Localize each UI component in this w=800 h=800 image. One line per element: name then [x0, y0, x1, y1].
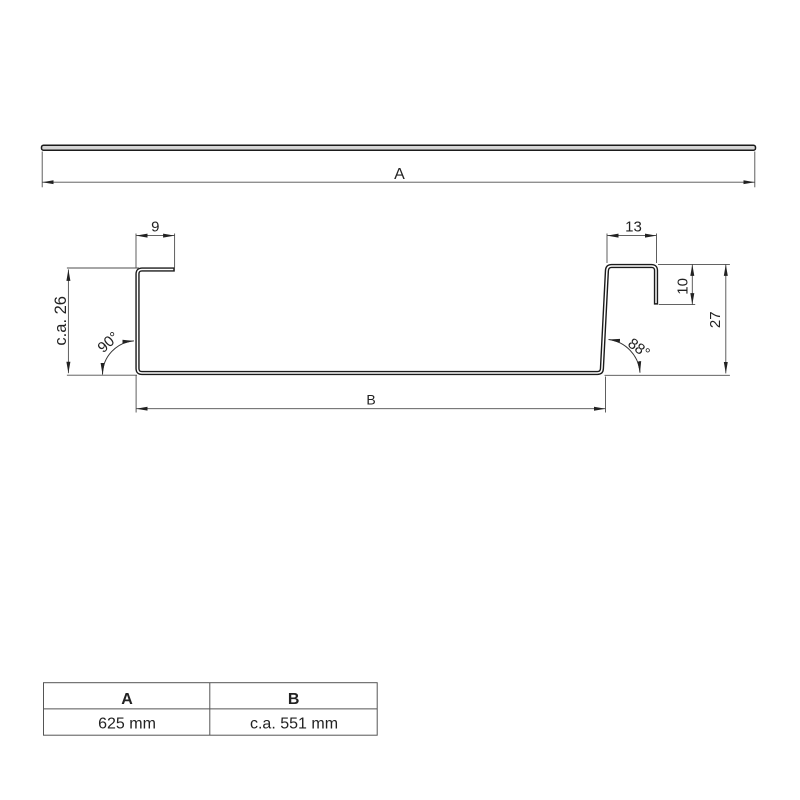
- svg-text:B: B: [288, 691, 300, 708]
- svg-text:B: B: [366, 391, 375, 407]
- svg-text:27: 27: [707, 311, 724, 328]
- svg-text:88°: 88°: [625, 335, 653, 362]
- svg-text:90°: 90°: [94, 329, 122, 357]
- svg-text:c.a. 26: c.a. 26: [52, 296, 70, 346]
- svg-text:9: 9: [151, 218, 159, 235]
- svg-text:c.a. 551 mm: c.a. 551 mm: [250, 716, 338, 733]
- svg-text:625 mm: 625 mm: [98, 716, 156, 733]
- svg-text:A: A: [121, 691, 133, 708]
- svg-text:10: 10: [674, 278, 691, 295]
- svg-text:13: 13: [625, 218, 642, 235]
- svg-text:A: A: [394, 166, 405, 183]
